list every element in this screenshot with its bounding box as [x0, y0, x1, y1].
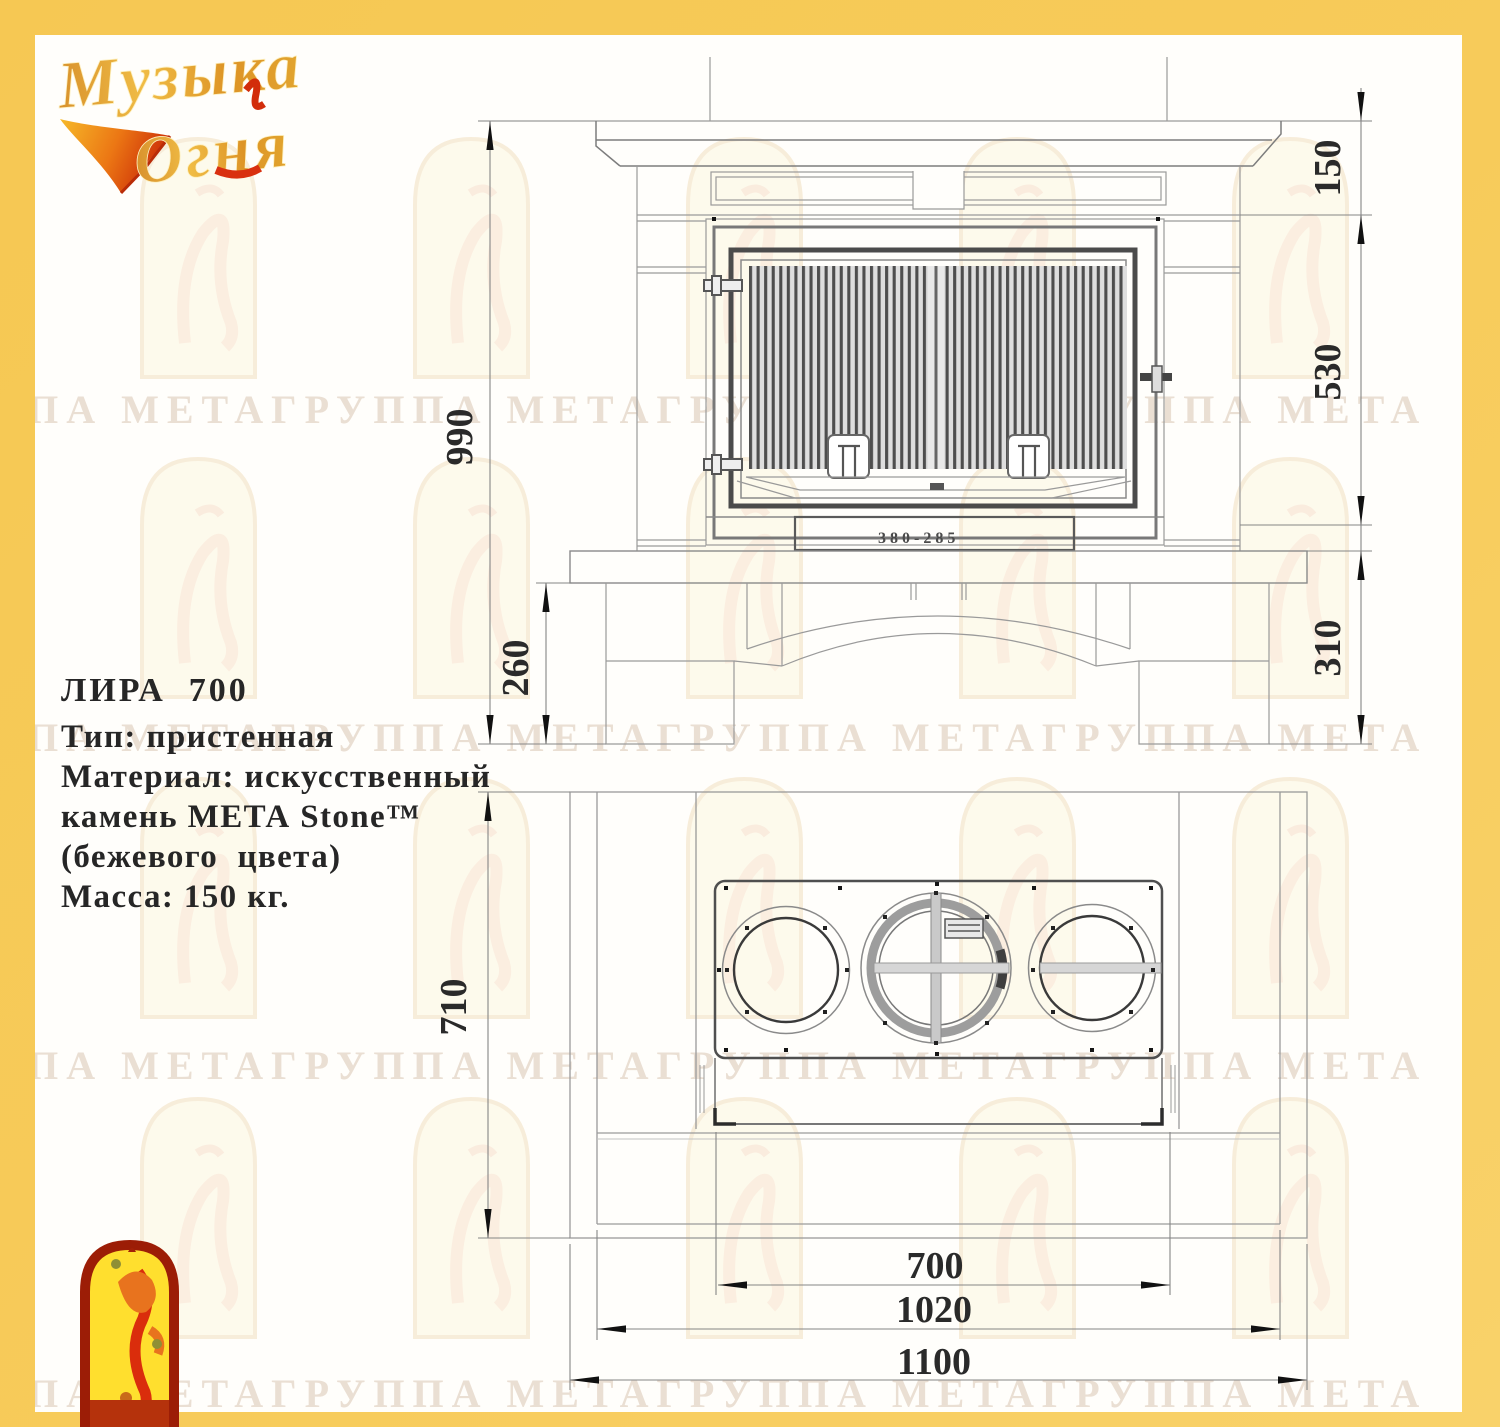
svg-text:380-285: 380-285: [878, 530, 959, 547]
svg-text:710: 710: [433, 979, 475, 1036]
svg-text:ППА МЕТАГРУППА МЕТАГРУППА МЕТА: ППА МЕТАГРУППА МЕТАГРУППА МЕТАГРУППА МЕТ…: [0, 1043, 1427, 1088]
svg-text:ППА МЕТАГРУППА МЕТАГРУППА МЕТА: ППА МЕТАГРУППА МЕТАГРУППА МЕТАГРУППА МЕТ…: [0, 1371, 1427, 1416]
svg-text:310: 310: [1307, 620, 1349, 677]
svg-text:Огня: Огня: [130, 106, 295, 199]
svg-text:1100: 1100: [897, 1341, 971, 1383]
svg-text:1020: 1020: [896, 1289, 972, 1331]
svg-text:150: 150: [1307, 140, 1349, 197]
svg-text:260: 260: [495, 640, 537, 697]
svg-text:530: 530: [1307, 344, 1349, 401]
svg-text:990: 990: [439, 409, 481, 466]
svg-text:700: 700: [907, 1245, 964, 1287]
